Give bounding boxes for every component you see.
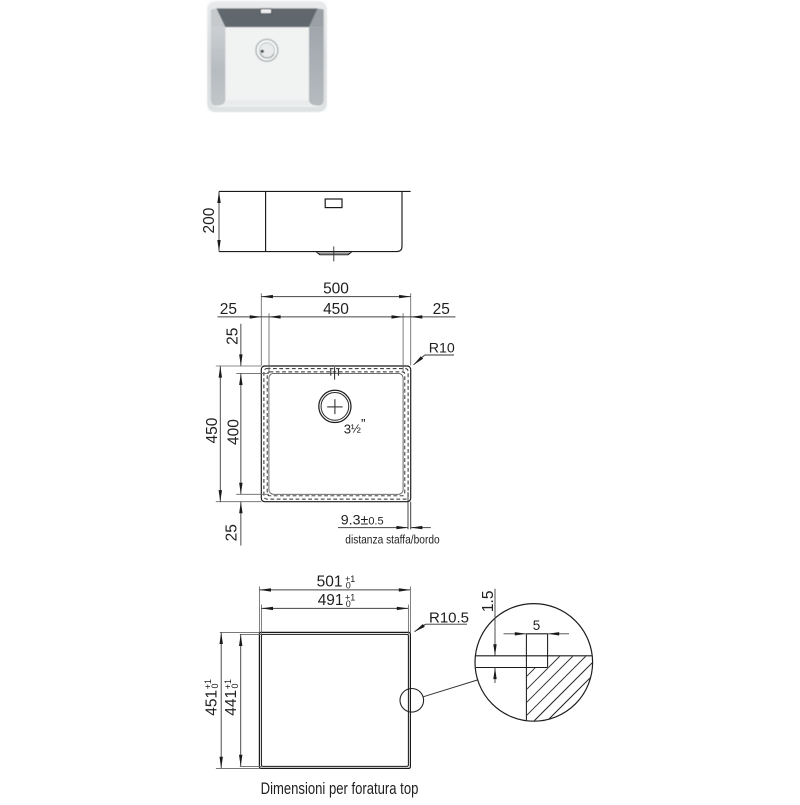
svg-text:400: 400 bbox=[226, 419, 243, 445]
svg-text:441: 441 bbox=[223, 690, 240, 716]
svg-text:0: 0 bbox=[210, 683, 220, 688]
svg-text:R10: R10 bbox=[429, 341, 455, 357]
svg-text:451: 451 bbox=[203, 690, 220, 716]
svg-text:500: 500 bbox=[323, 281, 349, 298]
svg-text:501: 501 bbox=[317, 574, 343, 591]
svg-text:0: 0 bbox=[230, 683, 240, 688]
svg-text:5: 5 bbox=[533, 618, 541, 633]
svg-text:”: ” bbox=[361, 417, 366, 432]
svg-text:9.3±0.5: 9.3±0.5 bbox=[341, 512, 384, 528]
svg-text:450: 450 bbox=[323, 301, 349, 318]
svg-text:25: 25 bbox=[220, 301, 237, 318]
svg-text:½: ½ bbox=[351, 421, 361, 435]
svg-text:25: 25 bbox=[433, 301, 450, 318]
svg-text:450: 450 bbox=[204, 417, 221, 443]
svg-text:0: 0 bbox=[346, 581, 351, 591]
svg-text:distanza staffa/bordo: distanza staffa/bordo bbox=[345, 534, 439, 547]
svg-text:Dimensioni per foratura top: Dimensioni per foratura top bbox=[261, 779, 419, 798]
svg-text:25: 25 bbox=[224, 328, 241, 345]
svg-text:1.5: 1.5 bbox=[480, 591, 497, 613]
svg-text:491: 491 bbox=[318, 592, 344, 609]
svg-text:25: 25 bbox=[223, 524, 240, 541]
svg-text:0: 0 bbox=[346, 599, 351, 609]
svg-text:200: 200 bbox=[201, 207, 218, 233]
